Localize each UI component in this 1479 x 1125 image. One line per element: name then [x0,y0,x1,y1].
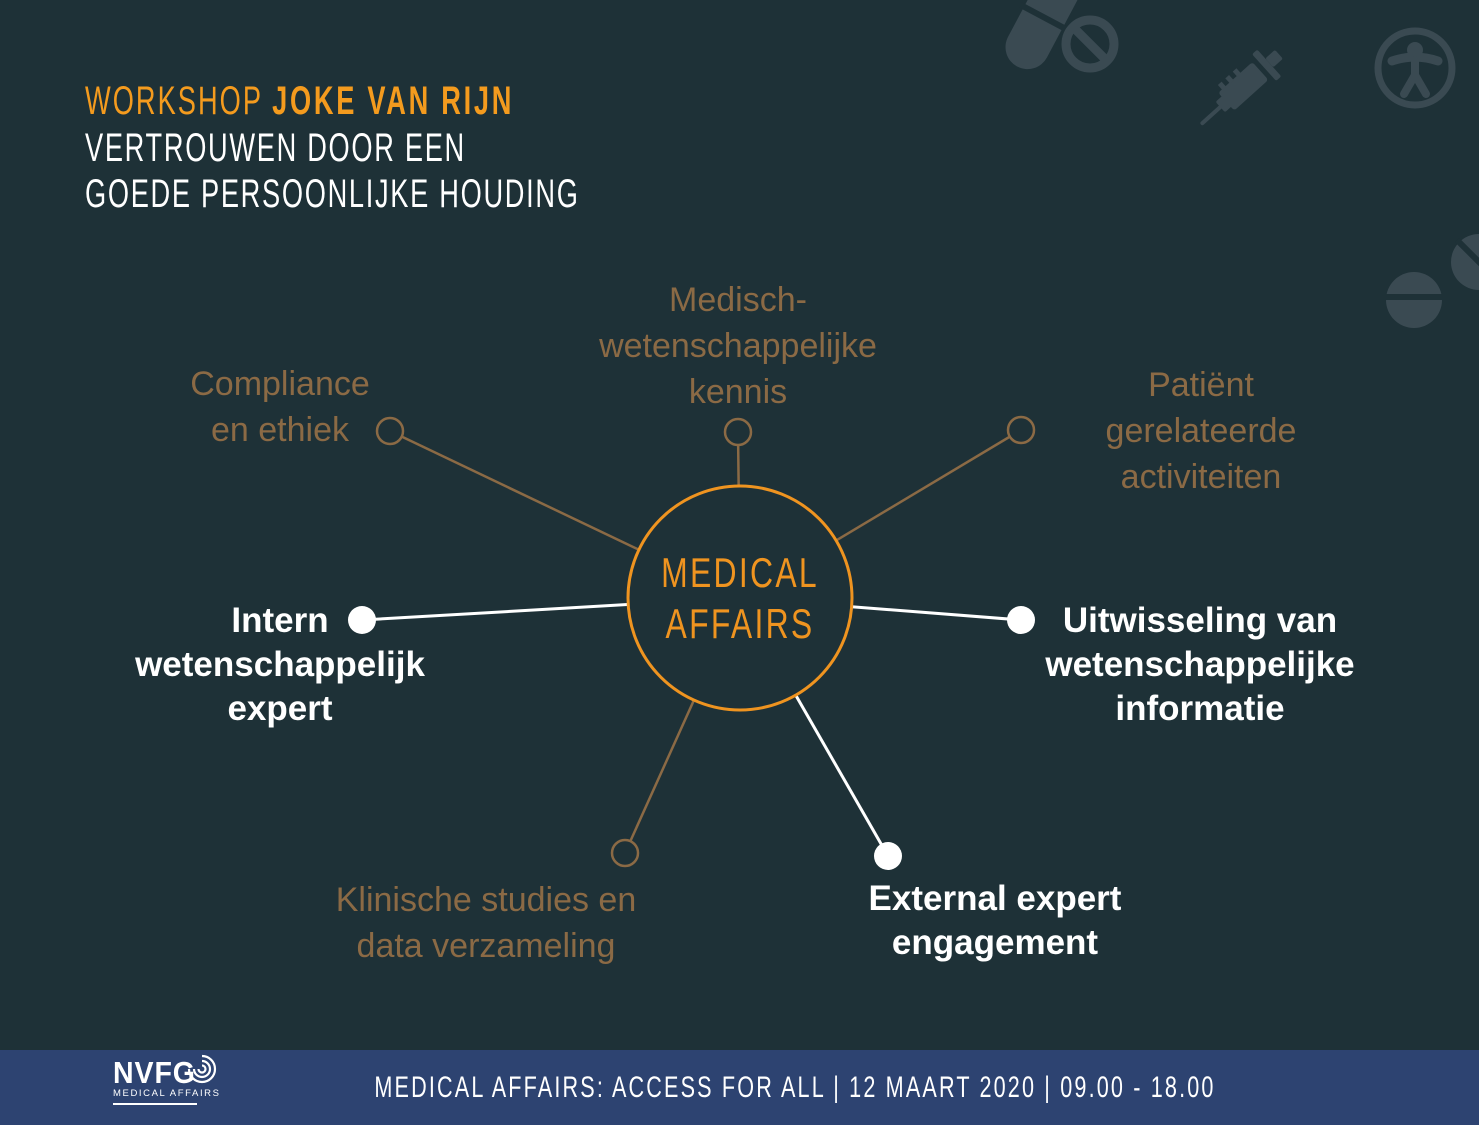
footer-banner: NVFG MEDICAL AFFAIRS MEDICAL AFFAIRS: AC… [0,1050,1479,1125]
page-title-line-1: VERTROUWEN DOOR EEN [85,125,580,171]
nvfg-swirl-icon [185,1052,219,1086]
page-title-line-2: GOEDE PERSOONLIJKE HOUDING [85,171,580,217]
nvfg-logo-underline: MEDICAL AFFAIRS [113,1088,197,1105]
node-patient-label: Patiënt gerelateerde activiteiten [1106,362,1297,500]
slide: WORKSHOP JOKE VAN RIJN VERTROUWEN DOOR E… [0,0,1479,1125]
node-line: Patiënt [1106,362,1297,408]
node-medisch-label: Medisch- wetenschappelijke kennis [599,277,877,415]
hub-label-line: AFFAIRS [661,598,819,649]
tablet-diagonal-icon [1437,220,1479,303]
nvfg-logo: NVFG MEDICAL AFFAIRS [113,1058,203,1105]
node-line: wetenschappelijke [599,323,877,369]
node-line: engagement [869,921,1122,965]
node-intern-label: Intern wetenschappelijk expert [135,599,425,731]
node-line: wetenschappelijk [135,643,425,687]
node-line: data verzameling [336,923,637,969]
node-line: Compliance [190,361,370,407]
tablet-icon [1383,272,1445,328]
node-uitwisseling-label: Uitwisseling van wetenschappelijke infor… [1045,599,1354,731]
node-line: Uitwisseling van [1045,599,1354,643]
node-external-label: External expert engagement [869,877,1122,965]
node-line: Klinische studies en [336,877,637,923]
hub-label: MEDICAL AFFAIRS [661,547,819,649]
accessibility-icon [1378,31,1452,105]
node-line: Medisch- [599,277,877,323]
prohibition-icon [1066,20,1114,68]
node-line: wetenschappelijke [1045,643,1354,687]
header: WORKSHOP JOKE VAN RIJN VERTROUWEN DOOR E… [85,78,580,217]
node-compliance-label: Compliance en ethiek [190,361,370,453]
speaker-name: JOKE VAN RIJN [272,79,514,123]
node-line: informatie [1045,687,1354,731]
node-line: expert [135,687,425,731]
hub-label-line: MEDICAL [661,547,819,598]
banner-text: MEDICAL AFFAIRS: ACCESS FOR ALL | 12 MAA… [374,1050,1215,1125]
node-line: gerelateerde [1106,408,1297,454]
workshop-eyebrow: WORKSHOP JOKE VAN RIJN [85,78,580,125]
node-klinische-label: Klinische studies en data verzameling [336,877,637,969]
syringe-icon [1189,41,1291,138]
node-line: en ethiek [190,407,370,453]
node-line: External expert [869,877,1122,921]
node-line: activiteiten [1106,454,1297,500]
node-line: kennis [599,369,877,415]
node-line: Intern [135,599,425,643]
nvfg-logo-name: NVFG [113,1058,196,1088]
workshop-label: WORKSHOP [85,79,263,123]
